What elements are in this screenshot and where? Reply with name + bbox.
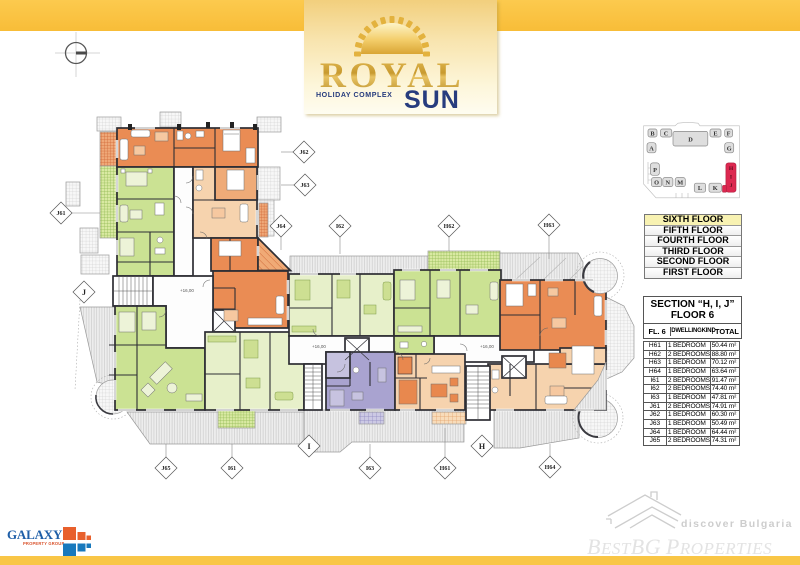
svg-text:J65: J65 xyxy=(162,466,171,472)
svg-text:I63: I63 xyxy=(366,466,374,472)
svg-text:J61: J61 xyxy=(57,211,66,217)
svg-text:H61: H61 xyxy=(440,466,451,472)
svg-text:+16,00: +16,00 xyxy=(312,344,326,349)
svg-text:H62: H62 xyxy=(444,224,455,230)
svg-text:I62: I62 xyxy=(336,224,344,230)
svg-text:J63: J63 xyxy=(301,183,310,189)
svg-text:I61: I61 xyxy=(228,466,236,472)
svg-text:J: J xyxy=(82,288,86,297)
svg-text:H: H xyxy=(479,442,486,451)
svg-text:H63: H63 xyxy=(544,223,555,229)
svg-text:I: I xyxy=(307,442,310,451)
svg-text:J62: J62 xyxy=(300,150,309,156)
svg-text:+16,00: +16,00 xyxy=(180,288,194,293)
svg-text:+16,00: +16,00 xyxy=(480,344,494,349)
svg-text:J64: J64 xyxy=(277,224,286,230)
svg-text:H64: H64 xyxy=(545,465,556,471)
